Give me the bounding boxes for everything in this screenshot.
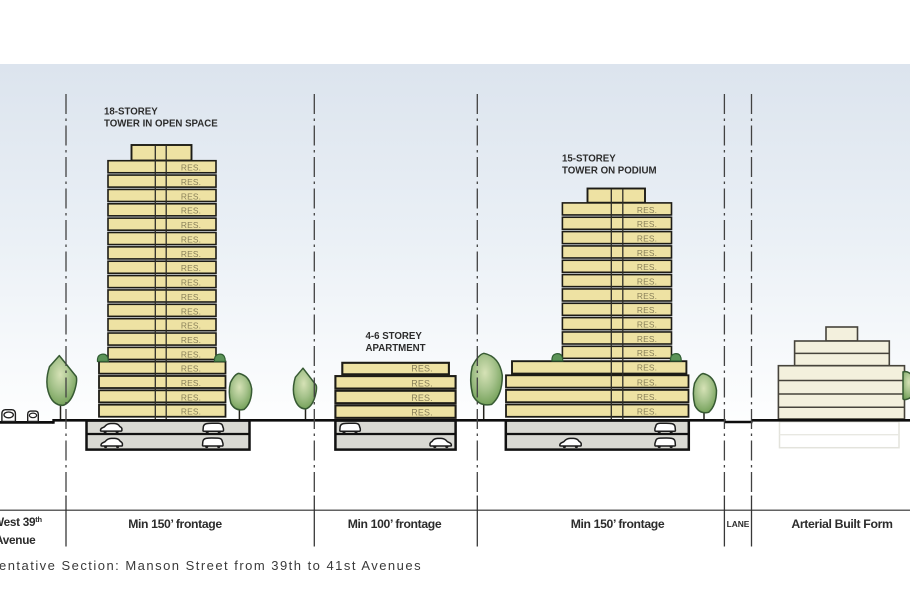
svg-text:RES.: RES. bbox=[637, 334, 657, 344]
svg-text:RES.: RES. bbox=[411, 393, 433, 403]
svg-text:RES.: RES. bbox=[181, 235, 201, 245]
svg-text:4-6 STOREY: 4-6 STOREY bbox=[366, 331, 423, 342]
svg-text:Min 100’ frontage: Min 100’ frontage bbox=[348, 517, 442, 531]
svg-text:TOWER IN OPEN SPACE: TOWER IN OPEN SPACE bbox=[104, 119, 218, 130]
svg-text:RES.: RES. bbox=[637, 407, 657, 417]
svg-text:RES.: RES. bbox=[181, 364, 201, 374]
svg-text:RES.: RES. bbox=[181, 306, 201, 316]
svg-text:RES.: RES. bbox=[181, 177, 201, 187]
svg-text:RES.: RES. bbox=[181, 191, 201, 201]
svg-text:RES.: RES. bbox=[637, 363, 657, 373]
svg-text:RES.: RES. bbox=[181, 263, 201, 273]
svg-text:RES.: RES. bbox=[181, 249, 201, 259]
svg-text:RES.: RES. bbox=[637, 305, 657, 315]
svg-text:RES.: RES. bbox=[181, 407, 201, 417]
svg-text:RES.: RES. bbox=[637, 262, 657, 272]
svg-text:RES.: RES. bbox=[637, 392, 657, 402]
svg-text:RES.: RES. bbox=[637, 205, 657, 215]
svg-text:RES.: RES. bbox=[181, 206, 201, 216]
svg-text:Arterial Built Form: Arterial Built Form bbox=[791, 517, 893, 531]
svg-text:RES.: RES. bbox=[637, 277, 657, 287]
svg-text:APARTMENT: APARTMENT bbox=[366, 343, 426, 354]
svg-text:RES.: RES. bbox=[411, 363, 433, 373]
svg-text:TOWER ON PODIUM: TOWER ON PODIUM bbox=[562, 166, 657, 177]
svg-text:RES.: RES. bbox=[637, 234, 657, 244]
svg-text:RES.: RES. bbox=[411, 408, 433, 418]
svg-text:RES.: RES. bbox=[181, 163, 201, 173]
svg-text:LANE: LANE bbox=[727, 519, 750, 529]
svg-text:RES.: RES. bbox=[181, 378, 201, 388]
svg-text:Min 150’ frontage: Min 150’ frontage bbox=[128, 517, 222, 531]
svg-text:RES.: RES. bbox=[637, 348, 657, 358]
svg-text:RES.: RES. bbox=[637, 219, 657, 229]
svg-text:18-STOREY: 18-STOREY bbox=[104, 107, 158, 118]
svg-text:RES.: RES. bbox=[181, 349, 201, 359]
svg-text:RES.: RES. bbox=[181, 292, 201, 302]
svg-text:RES.: RES. bbox=[181, 321, 201, 331]
svg-text:Min 150’ frontage: Min 150’ frontage bbox=[571, 517, 665, 531]
svg-text:RES.: RES. bbox=[637, 291, 657, 301]
svg-text:entative Section: Manson Stree: entative Section: Manson Street from 39t… bbox=[0, 558, 422, 573]
svg-text:RES.: RES. bbox=[181, 220, 201, 230]
svg-text:RES.: RES. bbox=[181, 392, 201, 402]
svg-text:RES.: RES. bbox=[181, 278, 201, 288]
svg-text:RES.: RES. bbox=[637, 248, 657, 258]
svg-text:Avenue: Avenue bbox=[0, 533, 36, 547]
svg-text:RES.: RES. bbox=[637, 320, 657, 330]
svg-text:15-STOREY: 15-STOREY bbox=[562, 154, 616, 165]
svg-text:RES.: RES. bbox=[637, 377, 657, 387]
svg-text:RES.: RES. bbox=[411, 378, 433, 388]
svg-text:RES.: RES. bbox=[181, 335, 201, 345]
